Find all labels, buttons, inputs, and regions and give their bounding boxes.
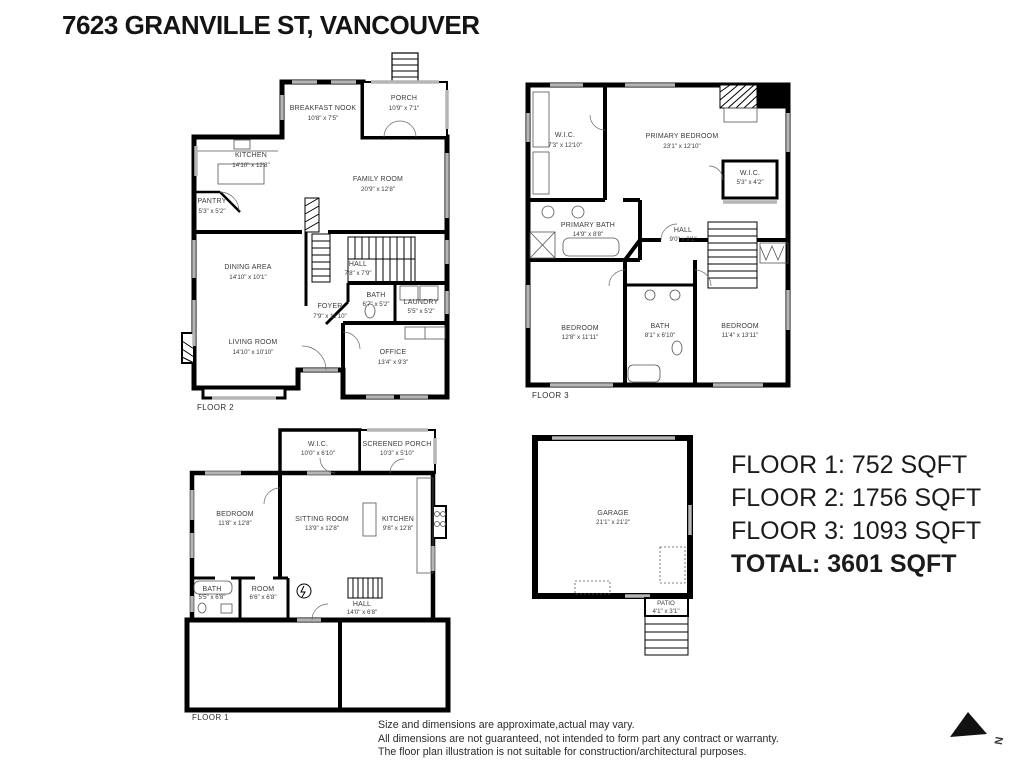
floor2-sqft: FLOOR 2: 1756 SQFT: [731, 482, 981, 515]
floor3-sqft: FLOOR 3: 1093 SQFT: [731, 515, 981, 548]
room-label: PATIO: [657, 600, 675, 607]
room-dims: 13'4" x 9'3": [378, 359, 409, 366]
room-dims: 21'1" x 21'2": [596, 519, 630, 526]
room-label: PORCH: [391, 95, 417, 102]
room-label: BATH: [367, 292, 386, 299]
disclaimer-line: The floor plan illustration is not suita…: [378, 746, 779, 760]
disclaimer-line: All dimensions are not guaranteed, not i…: [378, 733, 779, 747]
room-label: LIVING ROOM: [229, 339, 278, 346]
room-label: BATH: [651, 323, 670, 330]
room-dims: 23'1" x 12'10": [663, 143, 700, 150]
room-label: PRIMARY BATH: [561, 222, 615, 229]
room-dims: 4'1" x 3'1": [652, 608, 679, 615]
room-label: SITTING ROOM: [295, 516, 349, 523]
room-dims: 6'7" x 5'2": [362, 301, 389, 308]
room-dims: 7'3" x 12'10": [548, 142, 582, 149]
north-arrow-icon: N: [948, 698, 1018, 758]
disclaimer: Size and dimensions are approximate,actu…: [378, 719, 779, 760]
room-dims: 13'9" x 12'8": [305, 525, 339, 532]
room-dims: 10'8" x 7'5": [308, 115, 339, 122]
room-label: HALL: [353, 601, 371, 608]
room-label: HALL: [674, 227, 692, 234]
floor1-tag: FLOOR 1: [192, 713, 229, 722]
garage-walls: [535, 438, 690, 655]
room-dims: 9'8" x 12'8": [383, 525, 414, 532]
porch-steps: [392, 53, 418, 82]
room-dims: 8'1" x 6'10": [645, 332, 676, 339]
room-dims: 14'10" x 10'1": [229, 274, 266, 281]
room-dims: 14'9" x 8'8": [573, 231, 604, 238]
floor1-sqft: FLOOR 1: 752 SQFT: [731, 449, 981, 482]
page-title: 7623 GRANVILLE ST, VANCOUVER: [62, 10, 480, 41]
room-label: W.I.C.: [308, 441, 328, 448]
room-dims: 14'10" x 12'8": [232, 162, 269, 169]
room-dims: 10'0" x 6'10": [301, 450, 335, 457]
floor3-plan: W.I.C. 7'3" x 12'10" PRIMARY BEDROOM 23'…: [525, 80, 795, 398]
room-dims: 5'5" x 5'2": [407, 308, 434, 315]
garage-plan: GARAGE 21'1" x 21'2" PATIO 4'1" x 3'1": [530, 435, 700, 660]
room-label: FOYER: [317, 303, 342, 310]
total-sqft: TOTAL: 3601 SQFT: [731, 548, 981, 581]
room-label: BREAKFAST NOOK: [290, 105, 357, 112]
room-dims: 10'3" x 5'10": [380, 450, 414, 457]
room-label: PANTRY: [198, 198, 227, 205]
room-label: HALL: [349, 261, 367, 268]
room-dims: 14'0" x 6'8": [347, 609, 378, 616]
room-dims: 11'8" x 12'8": [218, 520, 251, 527]
room-label: W.I.C.: [555, 132, 575, 139]
floor2-plan: BREAKFAST NOOK 10'8" x 7'5" PORCH 10'9" …: [180, 50, 452, 422]
room-dims: 6'6" x 6'8": [249, 594, 276, 601]
room-label: PRIMARY BEDROOM: [646, 133, 719, 140]
room-label: BEDROOM: [216, 511, 254, 518]
room-label: LAUNDRY: [404, 299, 439, 306]
open-to-below: [757, 83, 788, 109]
room-dims: 7'9" x 11'10": [313, 313, 346, 320]
sqft-summary: FLOOR 1: 752 SQFT FLOOR 2: 1756 SQFT FLO…: [731, 449, 981, 581]
compass-triangle: [950, 712, 987, 737]
floor-plan-page: { "page": { "title": "7623 GRANVILLE ST,…: [0, 0, 1024, 768]
room-label: FAMILY ROOM: [353, 176, 403, 183]
compass-n-label: N: [991, 736, 1004, 746]
floor2-tag: FLOOR 2: [197, 403, 234, 412]
room-label: GARAGE: [597, 510, 628, 517]
room-label: OFFICE: [380, 349, 407, 356]
room-label: BEDROOM: [561, 325, 599, 332]
room-label: KITCHEN: [235, 152, 267, 159]
room-dims: 7'8" x 7'9": [344, 270, 371, 277]
room-label: ROOM: [252, 586, 275, 593]
room-label: SCREENED PORCH: [363, 441, 432, 448]
room-dims: 12'8" x 11'11": [562, 334, 598, 341]
floor1-plan: W.I.C. 10'0" x 6'10" SCREENED PORCH 10'3…: [185, 428, 453, 716]
room-dims: 9'0" x 9'1": [669, 236, 696, 243]
room-label: BEDROOM: [721, 323, 759, 330]
floor3-tag: FLOOR 3: [532, 391, 569, 400]
room-label: BATH: [203, 586, 222, 593]
room-dims: 10'9" x 7'1": [389, 105, 420, 112]
room-dims: 5'5" x 6'8": [198, 594, 225, 601]
patio-steps: [645, 616, 688, 655]
room-label: DINING AREA: [224, 264, 271, 271]
disclaimer-line: Size and dimensions are approximate,actu…: [378, 719, 779, 733]
room-dims: 5'3" x 5'2": [198, 208, 225, 215]
room-dims: 11'4" x 13'11": [722, 332, 758, 339]
room-label: KITCHEN: [382, 516, 414, 523]
room-dims: 14'10" x 10'10": [233, 349, 274, 356]
room-label: W.I.C.: [740, 170, 760, 177]
room-dims: 20'9" x 12'8": [361, 186, 395, 193]
room-dims: 5'3" x 4'2": [736, 179, 763, 186]
